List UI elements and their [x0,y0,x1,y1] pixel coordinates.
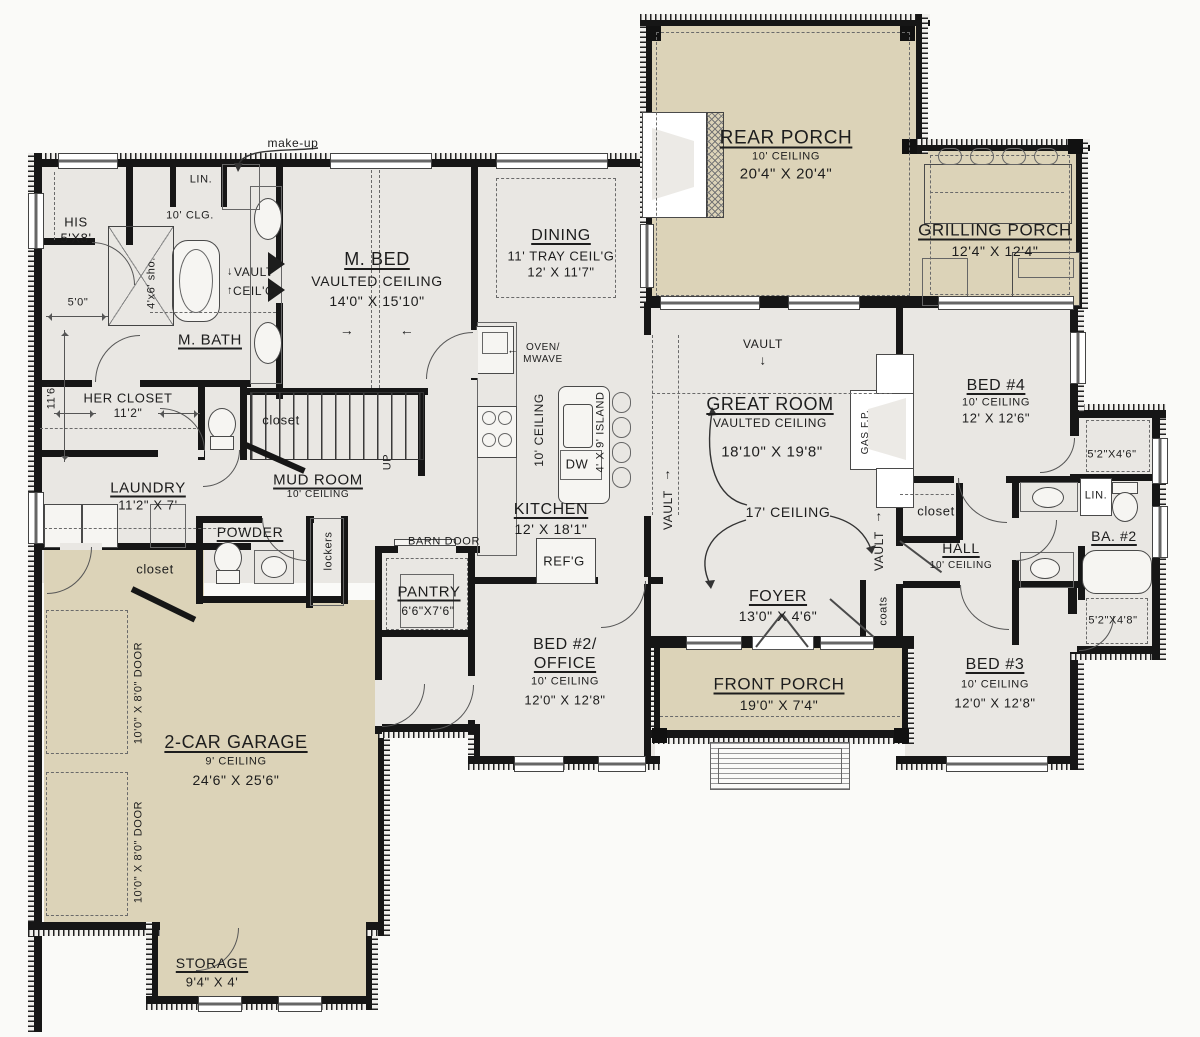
fireplace-niche-bottom [876,468,914,508]
master-bed-arrow-left: ← [400,323,415,337]
interior-wall [37,380,251,387]
spacer [1080,260,1082,262]
powder-toilet-tank [216,570,240,584]
dining-ceiling: 11' TRAY CEIL'G [508,250,615,263]
mbath-vault-line2: CEIL'G [233,285,275,297]
dashed-line [54,172,55,240]
window [598,756,646,772]
ba2-sink1-icon [1032,487,1064,508]
refrigerator-label: REF'G [543,555,585,568]
floor-plan: REAR PORCH10' CEILING20'4" X 20'4"GRILLI… [0,0,1200,1037]
room-grilling-porch: GRILLING PORCH [918,222,1072,239]
window [330,153,432,169]
master-bed-dim: 14'0" X 15'10" [329,294,424,308]
room-mbath: M. BATH [178,333,242,348]
exterior-wall [916,14,928,154]
front-porch-dim: 19'0" X 7'4" [740,698,819,712]
window [58,153,118,169]
window [788,296,860,310]
island-dim: 4' X 9' ISLAND [596,391,607,472]
exterior-wall [146,996,378,1010]
dim-11-6: 11'6" [47,383,58,410]
her-closet-dim: 11'2" [114,407,143,419]
dashed-outline [46,610,128,754]
porch-post [652,728,667,743]
foyer-dim: 13'0" X 4'6" [739,609,818,623]
burner4 [498,433,512,447]
window [1152,506,1168,558]
exterior-wall [378,724,390,936]
door-opening [896,546,903,584]
dim-line-11-2-right [158,413,200,414]
mbath-vault-line1: VAULT [234,266,274,278]
oven-arrow: ← [507,346,519,357]
front-steps-inner [718,748,842,784]
ba2-linen: LIN. [1085,491,1108,502]
dashed-line [930,192,1064,193]
grilling-porch-dim: 12'4" X 12'4" [952,244,1039,258]
stool3 [612,442,631,463]
bed2-ceiling: 10' CEILING [531,677,599,688]
dim-line-11-2-left [54,413,96,414]
kitchen-vault-arrow: ↑ [664,468,671,481]
window [28,193,44,249]
room-foyer: FOYER [749,589,807,605]
dashed-line [150,312,276,313]
dashed-outline [46,772,128,916]
dashed-outline [656,32,910,296]
bed3-ceiling: 10' CEILING [961,680,1029,691]
window [278,996,322,1012]
door-opening [1068,614,1077,652]
interior-wall [375,630,475,637]
coats-closet-label: coats [879,596,890,625]
interior-wall [860,580,866,642]
room-great-room: GREAT ROOM [706,395,833,413]
room-hall: HALL [942,541,979,555]
kitchen-dim: 12' X 18'1" [515,522,588,536]
burner1 [482,411,496,425]
stool4 [612,467,631,488]
exterior-wall [1070,648,1084,770]
oven-inner [482,332,508,354]
room-ba2: BA. #2 [1091,529,1137,543]
pantry-dim: 6'6"X7'6" [401,605,454,617]
interior-wall [170,165,176,207]
stool2 [612,417,631,438]
exterior-wall [28,153,42,1032]
door-opening [158,450,204,457]
makeup-label: make-up [268,137,319,149]
room-bed2-line2: OFFICE [534,656,596,672]
his-closet-line2: 5'X8' [60,232,91,245]
garage-closet-label: closet [136,563,174,576]
dim-line-5-0 [46,316,108,317]
garage-door1: 10'0" X 8'0" DOOR [134,642,145,744]
room-dining: DINING [531,228,591,244]
rear-porch-dim: 20'4" X 20'4" [740,167,833,182]
wc-toilet-tank [210,436,234,450]
kitchen-vault: VAULT [662,490,674,530]
hall-vault-arrow: ↑ [875,510,882,523]
master-sink2-icon [254,322,282,364]
dining-dim: 12' X 11'7" [527,266,594,279]
room-bed4: BED #4 [967,378,1026,394]
ba2-tub-icon [1082,550,1152,594]
storage-dim: 9'4" X 4' [186,976,239,989]
lockers-label: lockers [324,531,335,570]
dashed-line [652,335,653,515]
dashed-line [678,335,679,515]
stairs-closet-label: closet [262,414,300,427]
dishwasher-label: DW [566,458,589,471]
room-bed2-line1: BED #2/ [533,637,597,653]
porch-post [1068,139,1083,154]
garage-dim: 24'6" X 25'6" [193,773,280,787]
bed4-closet-dim: 5'2"X4'6" [1087,450,1136,461]
dashed-outline [1086,420,1150,472]
window [1152,438,1168,484]
room-laundry: LAUNDRY [110,481,186,496]
room-front-porch: FRONT PORCH [714,676,845,693]
interior-wall [1012,481,1019,645]
exterior-wall [1078,404,1166,418]
great-room-dim: 18'10" X 19'8" [721,445,823,460]
laundry-dim: 11'2" X 7' [118,499,177,512]
window [686,636,742,650]
bed2-dim: 12'0" X 12'8" [524,694,605,707]
his-closet-line1: HIS [64,216,87,229]
room-bed3: BED #3 [966,657,1025,673]
island-sink-icon [563,404,593,448]
room-rear-porch: REAR PORCH [720,129,853,148]
stairs-up: UP [383,454,394,470]
gas-fireplace-label: GAS F.P. [861,410,871,455]
room-kitchen: KITCHEN [514,502,588,518]
barn-door-label: BARN DOOR [408,537,480,548]
bed4-ceiling: 10' CEILING [962,398,1030,409]
interior-wall [196,516,203,604]
dashed-line [900,494,954,495]
hall-vault: VAULT [873,531,885,571]
exterior-wall [28,922,160,936]
room-garage: 2-CAR GARAGE [164,733,307,751]
mbath-vault-arrow-up: ↑ [227,286,233,297]
oven-line2: MWAVE [523,355,563,365]
powder-sink-icon [261,556,287,578]
door-opening [375,680,382,726]
interior-wall [644,577,651,763]
room-mud: MUD ROOM [273,473,363,488]
dim-line-11-6 [64,330,65,462]
window [28,492,44,544]
mbath-vault-arrow-down: ↓ [227,267,233,278]
window [820,636,874,650]
bed3-closet-dim: 5'2"X4'8" [1088,616,1137,627]
stool1 [612,392,631,413]
exterior-wall [640,14,930,26]
window [1070,332,1086,384]
window [640,224,654,288]
hall-ceiling: 10' CEILING [930,561,992,571]
makeup-counter [222,164,260,210]
bed4-dim: 12' X 12'6" [962,412,1030,425]
interior-wall [644,303,651,335]
rear-porch-ceiling: 10' CEILING [752,152,820,163]
burner3 [482,433,496,447]
exterior-wall [378,724,480,738]
window [938,296,1074,310]
kitchen-ceiling: 10' CEILING [533,393,545,467]
bed3-dim: 12'0" X 12'8" [954,697,1035,710]
hall-closet-label: closet [917,505,955,518]
oven-line1: OVEN/ [526,343,560,353]
interior-wall [37,450,159,457]
dashed-line [44,528,246,529]
ceiling-17: 17' CEILING [746,505,831,519]
master-tub-inner [179,249,213,313]
window [660,296,760,310]
porch-post [894,728,909,743]
garage-door2: 10'0" X 8'0" DOOR [134,801,145,903]
great-room-vault: VAULT [743,338,783,350]
great-room-vault-arrow: ↓ [759,354,766,367]
dashed-line [660,716,900,717]
great-room-ceiling: VAULTED CEILING [713,417,827,429]
window [514,756,564,772]
window [496,153,608,169]
garage-ceiling: 9' CEILING [205,757,266,768]
burner2 [498,411,512,425]
interior-wall [896,583,903,645]
master-bed-arrow-right: → [340,323,355,337]
her-closet-label: HER CLOSET [83,392,172,405]
washer-icon [82,504,118,548]
room-storage: STORAGE [176,956,248,970]
shower-dim: 4'x6' sho. [147,257,158,309]
linen-top: LIN. [190,175,213,186]
fireplace-niche-top [876,354,914,394]
mud-ceiling: 10' CEILING [287,490,349,500]
window [198,996,242,1012]
window [946,756,1048,772]
laundry-sink-cabinet [44,504,82,548]
room-master-bed: M. BED [344,250,410,268]
room-pantry: PANTRY [397,585,460,600]
ba2-sink2-icon [1030,558,1060,579]
room-powder: POWDER [217,525,284,539]
mbath-ceiling: 10' CLG. [166,211,214,222]
ba2-toilet-icon [1112,492,1138,522]
dim-5-0: 5'0" [68,298,89,309]
interior-wall [644,516,651,580]
master-bed-ceiling: VAULTED CEILING [311,274,442,288]
